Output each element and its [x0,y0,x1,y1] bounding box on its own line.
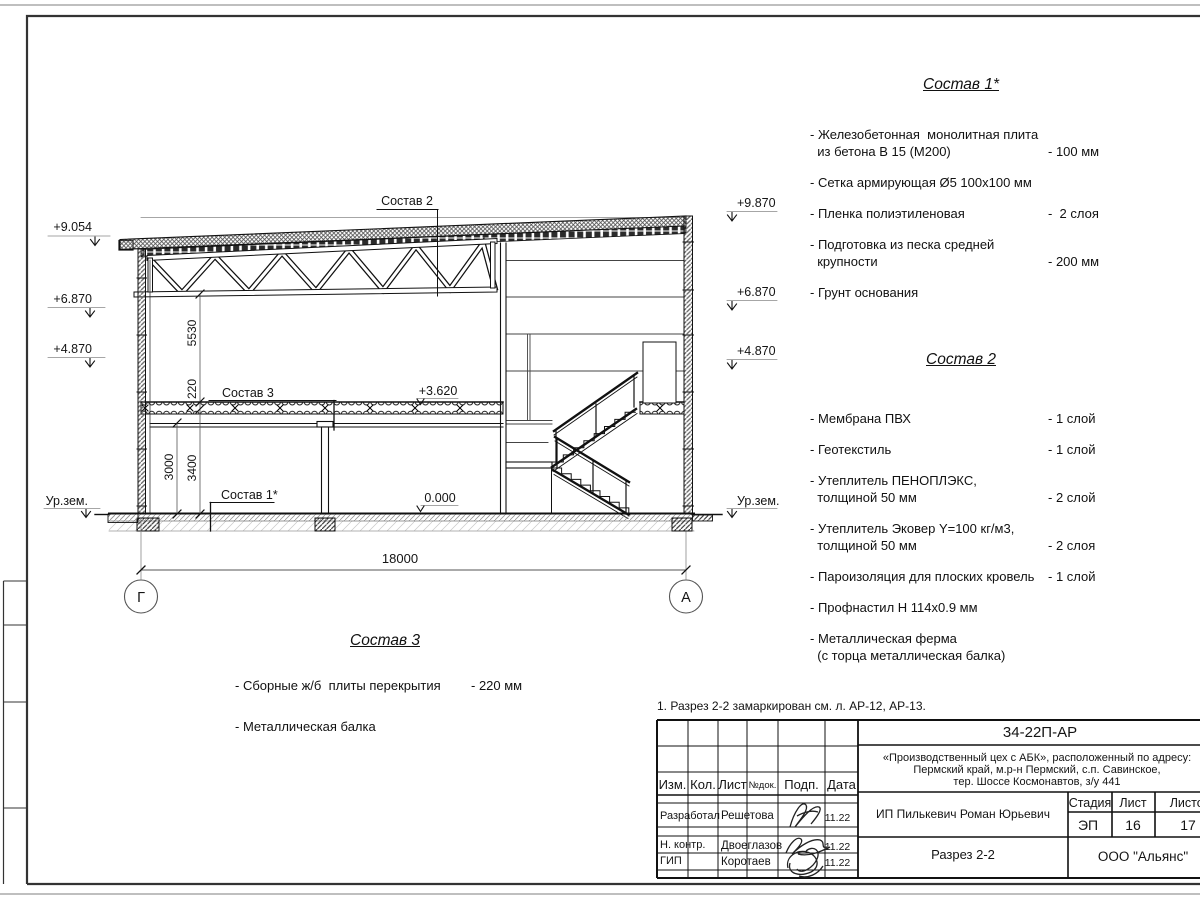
svg-text:ГИП: ГИП [660,855,682,867]
composition-3-title: Состав 3 [235,632,535,649]
dimension-18000: 18000 Г А [125,520,703,613]
composition-item: - Металлическая балка [235,718,535,735]
svg-text:3000: 3000 [162,453,176,480]
doc-code: 34-22П-АР [1003,724,1077,741]
composition-item: - Мембрана ПВХ - 1 слой [810,410,1112,427]
composition-item-value: - 220 мм [471,677,535,694]
svg-text:220: 220 [185,379,199,399]
right-wall [683,216,694,514]
svg-text:0.000: 0.000 [424,491,455,505]
svg-text:+6.870: +6.870 [737,285,776,299]
composition-item: - Подготовка из песка средней крупности … [810,236,1112,270]
svg-text:А: А [681,590,691,606]
composition-item-label: - Мембрана ПВХ [810,410,1048,427]
svg-text:Состав 3: Состав 3 [222,386,274,400]
composition-item-value: - 2 слой [1048,489,1112,506]
stage-sheet-cells: Стадия Лист Листов ЭП 16 17 [1069,796,1200,833]
svg-text:Разработал: Разработал [660,810,720,822]
svg-text:Стадия: Стадия [1069,796,1112,810]
title-block: Изм. Кол. Лист №док. Подп. Дата Разработ… [657,720,1200,878]
building-section: +9.054 +6.870 +4.870 Ур.зем. +9.870 +6.8… [44,194,779,613]
roof [119,216,686,257]
svg-text:Коротаев: Коротаев [721,856,771,868]
frame-left-column [4,581,28,884]
composition-item: - Сетка армирующая Ø5 100х100 мм [810,174,1112,191]
composition-item-value: - 1 слой [1048,410,1112,427]
elevation-marks-right: +9.870 +6.870 +4.870 Ур.зем. [727,196,779,518]
composition-item: - Железобетонная монолитная плита из бет… [810,126,1112,160]
composition-item-value: - 1 слой [1048,568,1112,585]
composition-item-label: - Подготовка из песка средней крупности [810,236,1048,270]
composition-item: - Утеплитель Эковер Y=100 кг/м3, толщино… [810,520,1112,554]
composition-item: - Геотекстиль - 1 слой [810,441,1112,458]
composition-item-label: - Грунт основания [810,284,1048,301]
drawing-sheet: +9.054 +6.870 +4.870 Ур.зем. +9.870 +6.8… [0,0,1200,900]
svg-text:Пермский край, м.р-н Пермский,: Пермский край, м.р-н Пермский, с.п. Сави… [913,764,1160,776]
composition-item-label: - Сборные ж/б плиты перекрытия [235,677,471,694]
composition-item: - Металлическая ферма (с торца металличе… [810,630,1112,664]
company-name: ООО "Альянс" [1098,849,1188,864]
composition-item-value: - 2 слоя [1048,537,1112,554]
door-opening [643,342,676,403]
lower-railing [555,437,629,512]
svg-text:17: 17 [1180,817,1196,833]
composition-item: - Утеплитель ПЕНОПЛЭКС, толщиной 50 мм -… [810,472,1112,506]
signature-marks [786,804,830,877]
svg-text:Лист: Лист [1119,796,1146,810]
elevation-marks-left: +9.054 +6.870 +4.870 Ур.зем. [44,220,110,518]
ground-floor [95,514,722,532]
composition-item-label: - Утеплитель ПЕНОПЛЭКС, толщиной 50 мм [810,472,1048,506]
composition-2-items: - Мембрана ПВХ - 1 слой - Геотекстиль - … [810,410,1112,664]
svg-text:+6.870: +6.870 [53,292,92,306]
svg-text:Кол.: Кол. [690,777,716,792]
composition-item-label: - Железобетонная монолитная плита из бет… [810,126,1048,160]
composition-item-label: - Пароизоляция для плоских кровель [810,568,1048,585]
composition-item-value: - 2 слоя [1048,205,1112,222]
composition-item-label: - Сетка армирующая Ø5 100х100 мм [810,174,1048,191]
svg-text:Подп.: Подп. [784,777,819,792]
svg-text:16: 16 [1125,817,1141,833]
composition-1-items: - Железобетонная монолитная плита из бет… [810,126,1112,301]
composition-2-block: Состав 2 - Мембрана ПВХ - 1 слой - Геоте… [810,351,1112,678]
svg-text:18000: 18000 [382,551,418,566]
svg-text:№док.: №док. [749,780,777,791]
composition-item-value: - 1 слой [1048,441,1112,458]
svg-text:Лист: Лист [718,777,746,792]
svg-text:11.22: 11.22 [825,812,851,824]
svg-text:Ур.зем.: Ур.зем. [737,494,779,508]
composition-1-block: Состав 1* - Железобетонная монолитная пл… [810,76,1112,315]
svg-text:Ур.зем.: Ур.зем. [46,494,88,508]
composition-2-title: Состав 2 [810,351,1112,368]
svg-text:Н. контр.: Н. контр. [660,839,705,851]
composition-item-label: - Геотекстиль [810,441,1048,458]
floor-slab [141,402,684,427]
composition-3-items: - Сборные ж/б плиты перекрытия - 220 мм … [235,677,535,735]
composition-item-value: - 100 мм [1048,143,1112,160]
client-name: ИП Пилькевич Роман Юрьевич [876,807,1050,821]
svg-text:5530: 5530 [185,319,199,346]
staircase [506,342,676,519]
composition-item: - Грунт основания [810,284,1112,301]
composition-item-label: - Металлическая ферма (с торца металличе… [810,630,1048,664]
svg-text:Изм.: Изм. [659,777,687,792]
svg-text:+4.870: +4.870 [737,344,776,358]
composition-item-label: - Металлическая балка [235,718,471,735]
project-address: «Производственный цех с АБК», расположен… [883,752,1191,788]
svg-text:Листов: Листов [1170,796,1200,810]
composition-item: - Пароизоляция для плоских кровель - 1 с… [810,568,1112,585]
composition-3-block: Состав 3 - Сборные ж/б плиты перекрытия … [235,632,535,759]
svg-text:+3.620: +3.620 [419,384,458,398]
svg-text:Решетова: Решетова [721,810,774,822]
svg-text:тер. Шоссе Космонавтов, з/у 44: тер. Шоссе Космонавтов, з/у 441 [953,776,1120,788]
composition-item-label: - Пленка полиэтиленовая [810,205,1048,222]
svg-text:3400: 3400 [185,454,199,481]
svg-text:11.22: 11.22 [825,857,851,869]
svg-text:Состав 1*: Состав 1* [221,488,278,502]
composition-1-title: Состав 1* [810,76,1112,93]
composition-item: - Сборные ж/б плиты перекрытия - 220 мм [235,677,535,694]
interior-wall [501,243,507,514]
middle-column [317,422,333,515]
composition-item-label: - Профнастил Н 114х0.9 мм [810,599,1048,616]
sheet-title: Разрез 2-2 [931,847,995,862]
svg-text:ЭП: ЭП [1078,817,1098,833]
composition-item: - Пленка полиэтиленовая - 2 слоя [810,205,1112,222]
composition-item-value: - 200 мм [1048,253,1112,270]
signature-rows: Разработал Решетова 11.22 Н. контр. Двое… [660,810,850,869]
svg-text:Дата: Дата [827,777,857,792]
stairwell-wall-lines [506,334,552,443]
composition-item: - Профнастил Н 114х0.9 мм [810,599,1112,616]
svg-text:«Производственный цех с АБК»,: «Производственный цех с АБК», расположен… [883,752,1191,764]
svg-text:+4.870: +4.870 [53,342,92,356]
svg-text:Г: Г [137,590,145,606]
svg-text:+9.870: +9.870 [737,196,776,210]
svg-text:Состав 2: Состав 2 [381,194,433,208]
svg-text:+9.054: +9.054 [53,220,92,234]
composition-item-label: - Утеплитель Эковер Y=100 кг/м3, толщино… [810,520,1048,554]
sheet-note: 1. Разрез 2-2 замаркирован см. л. АР-12,… [657,699,977,713]
svg-text:Двоеглазов: Двоеглазов [721,840,782,852]
